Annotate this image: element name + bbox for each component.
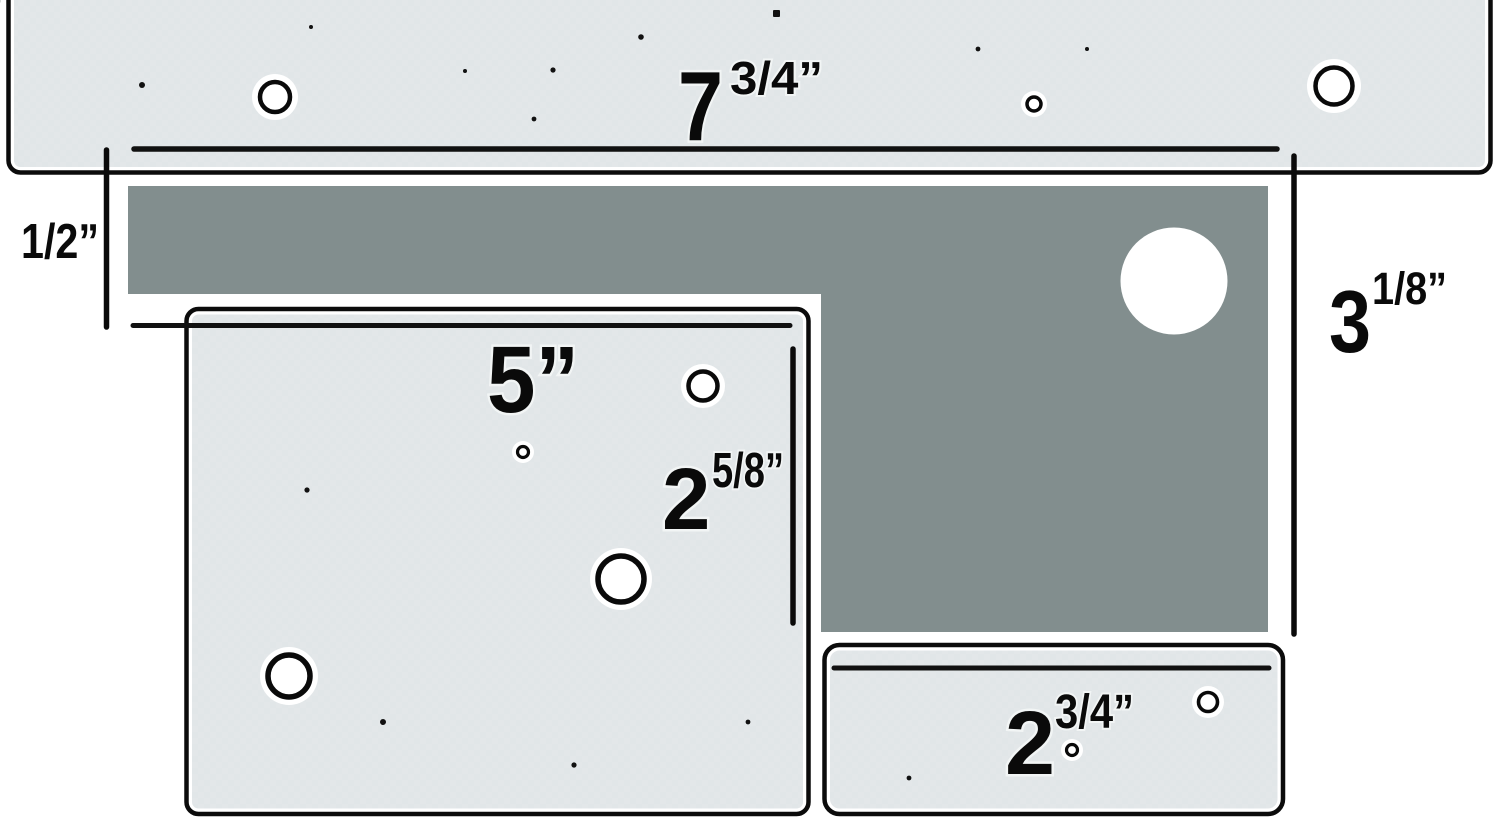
svg-text:2: 2 bbox=[1005, 694, 1055, 794]
svg-text:1/2”: 1/2” bbox=[21, 215, 99, 269]
svg-text:1/8”: 1/8” bbox=[1372, 263, 1447, 314]
svg-text:3/4”: 3/4” bbox=[1055, 686, 1134, 739]
svg-text:7: 7 bbox=[678, 51, 723, 161]
svg-text:5”: 5” bbox=[487, 327, 579, 433]
svg-text:5/8”: 5/8” bbox=[712, 444, 784, 498]
svg-text:2: 2 bbox=[662, 451, 710, 548]
svg-text:3: 3 bbox=[1329, 272, 1371, 371]
svg-text:3/4”: 3/4” bbox=[730, 52, 823, 104]
